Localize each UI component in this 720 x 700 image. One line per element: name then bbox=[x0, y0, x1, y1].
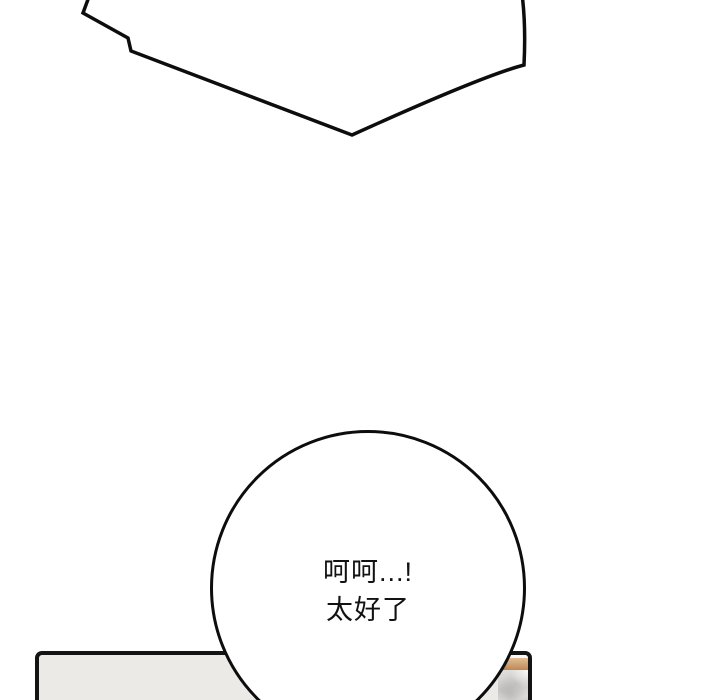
panel-artwork-fabric bbox=[498, 670, 528, 700]
speech-line-2: 太好了 bbox=[248, 591, 488, 629]
speech-line-1: 呵呵...! bbox=[248, 553, 488, 591]
shout-bubble-outline bbox=[0, 0, 720, 220]
speech-text: 呵呵...! 太好了 bbox=[248, 553, 488, 629]
shout-bubble-path bbox=[83, 0, 525, 135]
comic-page: 呵呵...! 太好了 bbox=[0, 0, 720, 700]
